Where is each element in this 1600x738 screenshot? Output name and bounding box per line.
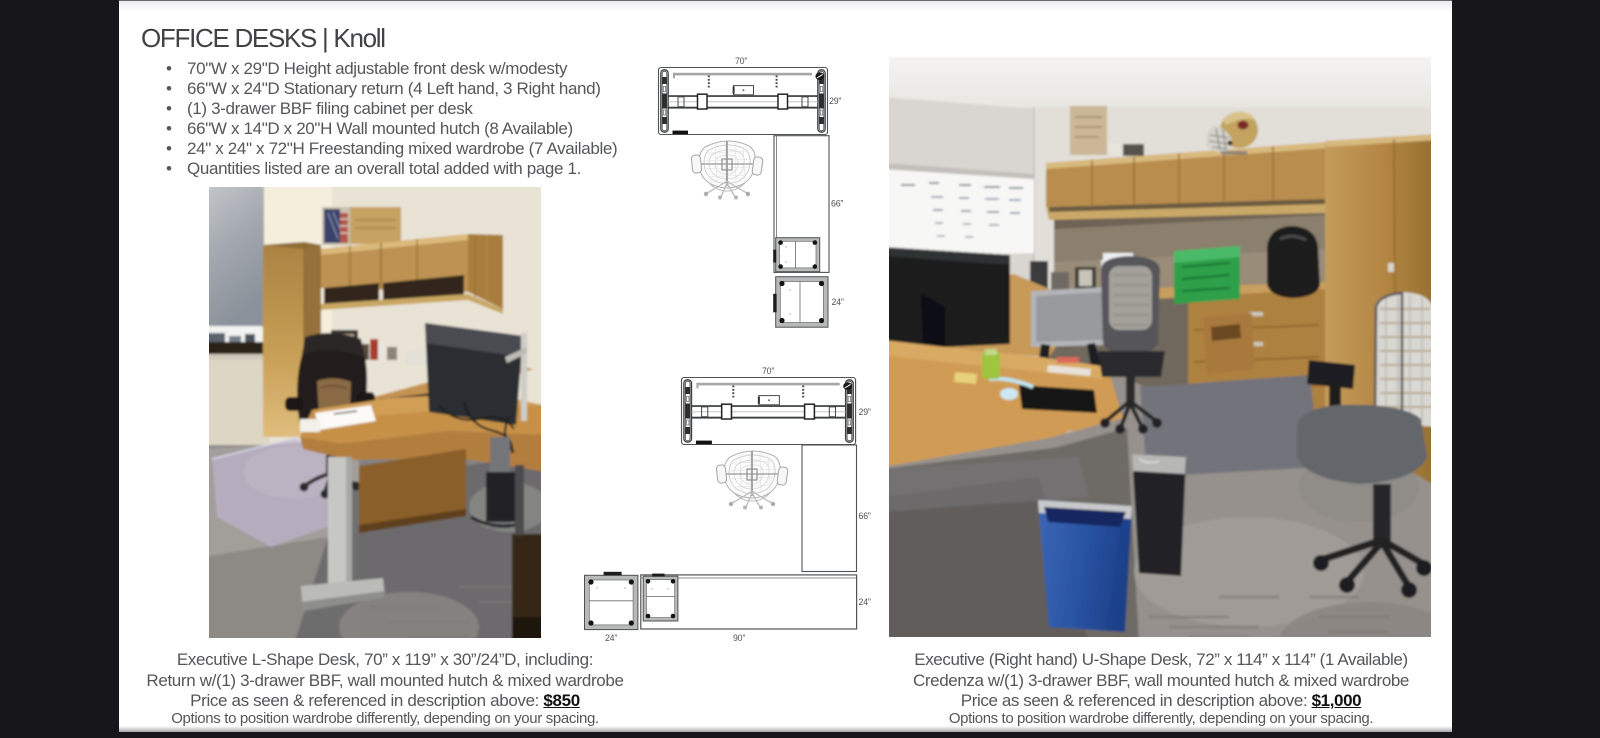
svg-text:24”: 24” — [605, 633, 617, 643]
svg-text:66”: 66” — [831, 199, 843, 209]
svg-text:24”: 24” — [859, 597, 871, 607]
svg-text:29”: 29” — [829, 96, 841, 106]
svg-text:29”: 29” — [859, 407, 871, 417]
svg-text:70”: 70” — [762, 366, 774, 376]
svg-text:90”: 90” — [733, 633, 745, 643]
svg-text:24”: 24” — [832, 297, 844, 307]
svg-text:66”: 66” — [859, 511, 871, 521]
svg-text:70”: 70” — [735, 56, 747, 66]
